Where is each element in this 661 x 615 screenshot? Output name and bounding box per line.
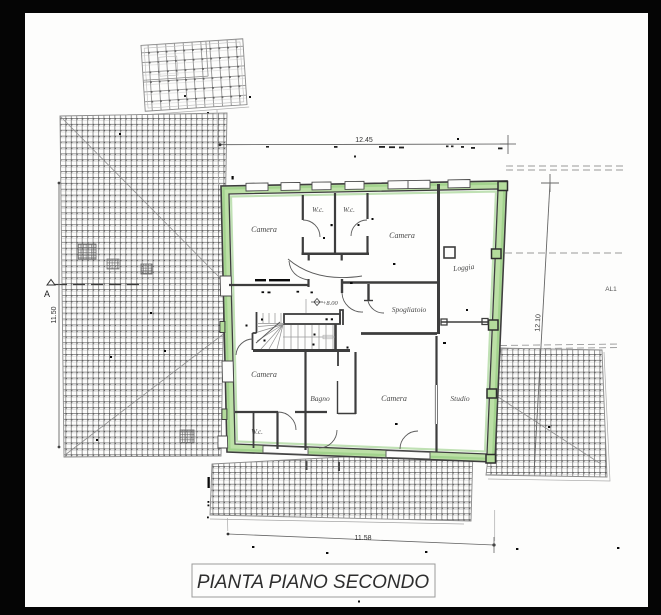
svg-text:W.c.: W.c. [312, 206, 324, 214]
svg-text:+8.00: +8.00 [322, 300, 339, 307]
svg-text:A: A [44, 289, 50, 299]
svg-text:Camera: Camera [381, 394, 407, 403]
svg-text:AL1: AL1 [605, 286, 617, 293]
svg-text:11.58: 11.58 [355, 535, 372, 542]
svg-text:12.45: 12.45 [355, 137, 373, 144]
svg-text:12.10: 12.10 [535, 314, 543, 332]
svg-text:Camera: Camera [389, 231, 415, 240]
svg-text:Bagno: Bagno [310, 394, 330, 403]
svg-text:Studio: Studio [450, 394, 469, 403]
svg-text:11.50: 11.50 [51, 306, 58, 323]
svg-text:Camera: Camera [251, 370, 277, 379]
svg-text:W.c.: W.c. [251, 428, 263, 436]
svg-text:Spogliatoio: Spogliatoio [392, 305, 427, 314]
svg-text:W.c.: W.c. [343, 206, 355, 214]
svg-text:Camera: Camera [251, 225, 277, 234]
svg-text:PIANTA PIANO SECONDO: PIANTA PIANO SECONDO [197, 572, 429, 593]
